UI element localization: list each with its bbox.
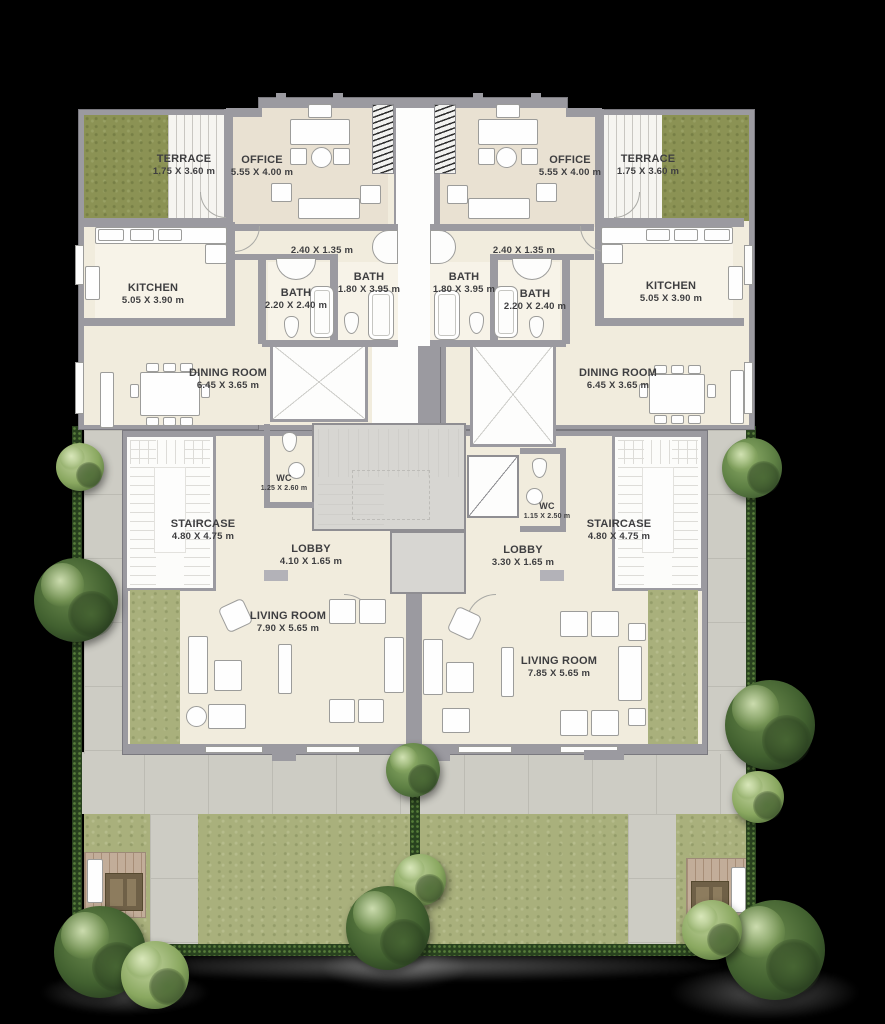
tv-console [278,644,292,694]
armchair [359,599,386,624]
room-label-lobby-right: LOBBY3.30 X 1.65 m [492,543,554,569]
armchair [447,185,468,204]
room-label-staircase-left: STAIRCASE4.80 X 4.75 m [171,517,236,543]
side-table [628,623,646,641]
window [75,245,84,285]
tree [725,680,815,770]
stair-landing [352,470,430,520]
room-label-terrace-left: TERRACE1.75 X 3.60 m [153,152,215,178]
sofa [208,704,246,729]
oven [728,266,743,300]
room-label-wc-right: WC1.15 X 2.50 m [524,501,571,521]
tree [682,900,742,960]
sofa [468,198,530,219]
room-label-living-right: LIVING ROOM7.85 X 5.65 m [521,654,597,680]
stair-flight [130,440,156,585]
bath-sink [372,230,398,264]
counter-unit [646,229,670,241]
tv-console [501,647,514,697]
lobby-mat [540,570,564,581]
chair [130,384,139,398]
chair [521,148,538,165]
bathtub [368,290,394,340]
armchair [271,183,292,202]
elevator [467,455,519,518]
armchair [442,708,470,733]
outdoor-fridge [731,867,746,913]
wardrobe [434,104,456,174]
wall-stub [333,93,343,100]
coffee-table [186,706,207,727]
tree [722,438,782,498]
armchair [536,183,557,202]
outdoor-fridge [87,859,103,903]
tree [732,771,784,823]
room-label-dining-right: DINING ROOM6.45 X 3.65 m [579,366,657,392]
cabinet [730,370,744,424]
armchair [329,699,355,723]
tree [121,941,189,1009]
armchair [560,611,588,637]
room-label-staircase-right: STAIRCASE4.80 X 4.75 m [587,517,652,543]
chair [688,365,701,374]
garden-path-right [628,814,676,948]
chair [671,415,684,424]
void-room-left [270,342,368,422]
void-room-right [470,342,556,447]
room-label-office-right: OFFICE5.55 X 4.00 m [539,153,601,179]
room-label-hall-right: 2.40 X 1.35 m [493,245,555,257]
floor-plan-canvas: TERRACE1.75 X 3.60 m OFFICE5.55 X 4.00 m… [0,0,885,1024]
counter-unit [158,229,182,241]
living-divider-wall [406,594,422,752]
armchair [591,611,619,637]
lobby-mat [264,570,288,581]
sofa [188,636,208,694]
chair [180,417,193,426]
room-label-wc-left: WC1.25 X 2.60 m [261,473,308,493]
column-stub [272,753,296,761]
garden-path-left [150,814,198,948]
bbq-grill [105,873,143,911]
cabinet [100,372,114,428]
room-label-hall-left: 2.40 X 1.35 m [291,245,353,257]
chair [146,363,159,372]
sofa [384,637,404,693]
column-stub [584,750,624,760]
wall-stub [276,93,286,100]
staircase-right-area [612,434,704,591]
chair [478,148,495,165]
inner-garden-left [130,590,180,744]
chair [496,147,517,168]
central-corridor [396,108,434,346]
oven [85,266,100,300]
chair [146,417,159,426]
room-label-kitchen-right: KITCHEN5.05 X 3.90 m [640,279,702,305]
chair [654,415,667,424]
window [306,746,360,753]
side-table [628,708,646,726]
stair-core-lower [390,531,466,594]
stair-flight [672,440,698,585]
room-label-kitchen-left: KITCHEN5.05 X 3.90 m [122,281,184,307]
window [744,362,753,414]
sofa [298,198,360,219]
bathtub [434,290,460,340]
dining-table [649,374,705,414]
room-label-bath-small-left: BATH2.20 X 2.40 m [265,286,327,312]
counter-unit [130,229,154,241]
window [205,746,263,753]
room-label-terrace-right: TERRACE1.75 X 3.60 m [617,152,679,178]
desk [478,119,538,145]
wall-stub [473,93,483,100]
kitchen-sink [98,229,124,241]
chair [688,415,701,424]
staircase-left-area [124,434,216,591]
room-label-bath-large-left: BATH1.80 X 3.95 m [338,270,400,296]
stair-core [312,423,466,531]
chair [311,147,332,168]
stair-flight [184,440,210,585]
desk-chair [308,104,332,118]
armchair [446,662,474,693]
room-label-living-left: LIVING ROOM7.90 X 5.65 m [250,609,326,635]
room-label-bath-small-right: BATH2.20 X 2.40 m [504,287,566,313]
armchair [591,710,619,736]
armchair [560,710,588,736]
window [458,746,512,753]
armchair [214,660,242,691]
fridge [205,244,227,264]
tree [346,886,430,970]
tree [56,443,104,491]
counter-unit [674,229,698,241]
room-label-office-left: OFFICE5.55 X 4.00 m [231,153,293,179]
kitchen-sink [704,229,730,241]
tree [34,558,118,642]
window [75,362,84,414]
wall-stub [531,93,541,100]
core-shaft [372,345,418,423]
window [744,245,753,285]
desk [290,119,350,145]
inner-garden-right [648,590,698,744]
chair [163,363,176,372]
fridge [601,244,623,264]
chair [333,148,350,165]
armchair [329,599,356,624]
hedge-left [72,426,82,954]
chair [671,365,684,374]
armchair [360,185,381,204]
room-label-bath-large-right: BATH1.80 X 3.95 m [433,270,495,296]
desk-chair [496,104,520,118]
tree [725,900,825,1000]
room-label-dining-left: DINING ROOM6.45 X 3.65 m [189,366,267,392]
tree [386,743,440,797]
wardrobe [372,104,394,174]
stair-flight [618,440,644,585]
sofa [618,646,642,701]
sofa [423,639,443,695]
chair [163,417,176,426]
room-label-lobby-left: LOBBY4.10 X 1.65 m [280,542,342,568]
chair [707,384,716,398]
armchair [358,699,384,723]
